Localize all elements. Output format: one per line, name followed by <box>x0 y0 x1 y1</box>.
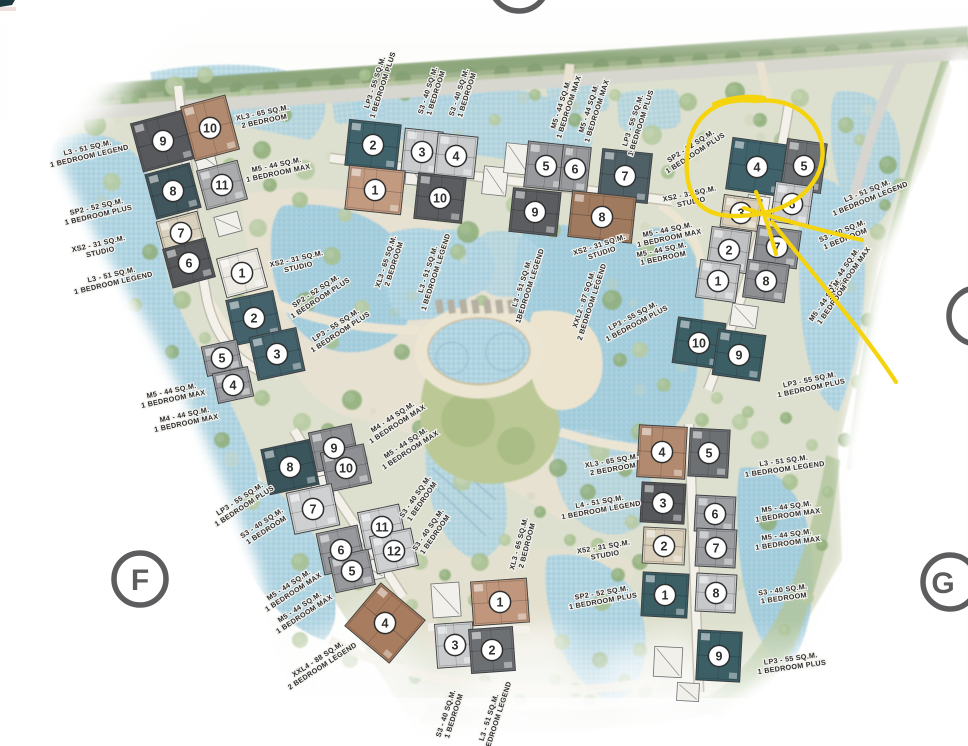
svg-text:12: 12 <box>387 544 401 558</box>
svg-text:1: 1 <box>662 588 669 602</box>
svg-text:1: 1 <box>497 595 504 609</box>
svg-text:7: 7 <box>310 502 317 516</box>
svg-text:5: 5 <box>801 159 808 173</box>
svg-text:3: 3 <box>419 145 426 159</box>
svg-text:9: 9 <box>736 348 743 362</box>
svg-text:1: 1 <box>372 183 379 197</box>
svg-text:9: 9 <box>331 441 338 455</box>
svg-text:4: 4 <box>453 149 460 163</box>
svg-text:9: 9 <box>716 649 723 663</box>
svg-text:2: 2 <box>726 243 733 257</box>
svg-text:8: 8 <box>287 460 294 474</box>
svg-text:10: 10 <box>203 121 217 135</box>
svg-text:2: 2 <box>661 539 668 553</box>
svg-text:2: 2 <box>370 138 377 152</box>
svg-text:G: G <box>931 567 954 600</box>
svg-text:7: 7 <box>622 169 629 183</box>
svg-text:2: 2 <box>489 643 496 657</box>
svg-text:3: 3 <box>660 496 667 510</box>
svg-text:9: 9 <box>160 134 167 148</box>
svg-text:7: 7 <box>178 226 185 240</box>
svg-text:1: 1 <box>239 266 246 280</box>
svg-text:8: 8 <box>763 274 770 288</box>
svg-text:8: 8 <box>599 210 606 224</box>
svg-text:10: 10 <box>339 461 353 475</box>
svg-text:11: 11 <box>375 520 388 534</box>
svg-text:6: 6 <box>712 507 719 521</box>
svg-text:4: 4 <box>754 160 761 174</box>
svg-text:7: 7 <box>713 541 720 555</box>
svg-text:5: 5 <box>349 564 356 578</box>
svg-text:8: 8 <box>713 586 720 600</box>
svg-text:10: 10 <box>692 336 706 350</box>
svg-text:3: 3 <box>452 638 459 652</box>
svg-text:3: 3 <box>274 347 281 361</box>
svg-text:6: 6 <box>338 543 345 557</box>
svg-text:F: F <box>131 564 149 597</box>
svg-text:4: 4 <box>659 445 666 459</box>
svg-text:6: 6 <box>572 162 579 176</box>
svg-text:8: 8 <box>170 184 177 198</box>
svg-text:9: 9 <box>532 205 539 219</box>
svg-text:6: 6 <box>186 256 193 270</box>
svg-text:5: 5 <box>706 446 713 460</box>
svg-text:5: 5 <box>543 159 550 173</box>
svg-text:1: 1 <box>715 274 722 288</box>
svg-text:2: 2 <box>251 311 258 325</box>
svg-text:10: 10 <box>433 191 447 205</box>
svg-text:4: 4 <box>382 616 389 630</box>
svg-text:5: 5 <box>219 351 226 365</box>
svg-text:4: 4 <box>230 378 237 392</box>
svg-text:11: 11 <box>215 178 228 192</box>
